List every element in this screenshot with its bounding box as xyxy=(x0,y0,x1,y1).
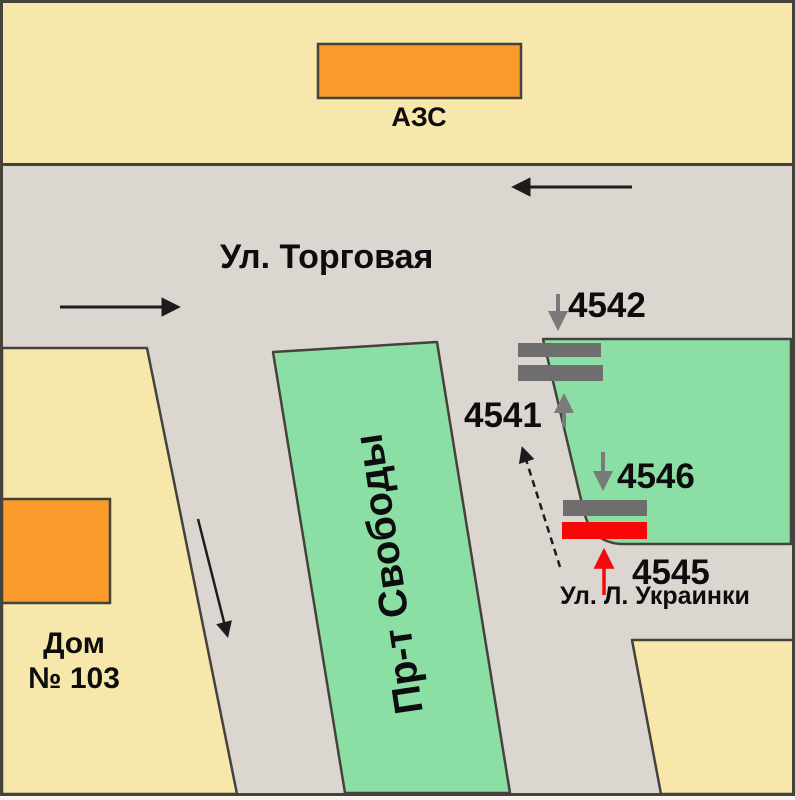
gas-station-label: АЗС xyxy=(391,102,446,132)
billboard-4545-panel xyxy=(562,522,647,539)
billboard-4541-label: 4541 xyxy=(464,396,542,435)
house-103-label-line1: Дом xyxy=(43,627,105,660)
billboard-4546-label: 4546 xyxy=(617,457,695,496)
block-southeast xyxy=(632,640,794,794)
house-103-building xyxy=(2,499,110,603)
map-canvas: АЗС Ул. Торговая Пр-т Свободы Дом № 103 … xyxy=(0,0,795,800)
house-103-label-line2: № 103 xyxy=(28,662,120,695)
billboard-4542-label: 4542 xyxy=(568,286,646,325)
street-ukrainki-label: Ул. Л. Украинки xyxy=(560,582,750,610)
billboard-location-map: АЗС Ул. Торговая Пр-т Свободы Дом № 103 … xyxy=(0,0,795,800)
bottom-edge-strip xyxy=(0,797,795,800)
billboard-4542-panel-2 xyxy=(518,365,603,381)
gas-station-building xyxy=(318,44,521,98)
billboard-4542-panel-1 xyxy=(518,343,601,357)
billboard-4546-panel xyxy=(563,500,647,516)
street-torgovaya-label: Ул. Торговая xyxy=(220,238,433,276)
